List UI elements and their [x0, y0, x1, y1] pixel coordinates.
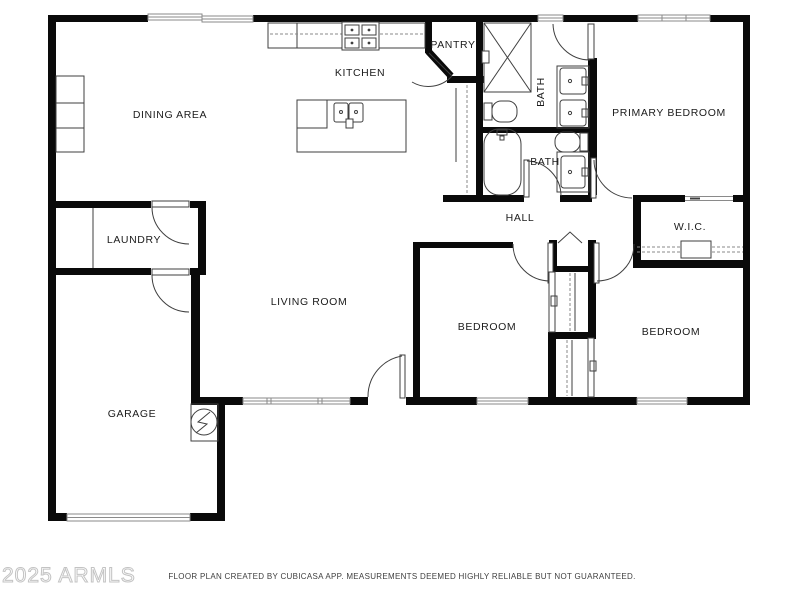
room-label-bath-hall: BATH	[530, 156, 560, 168]
windows	[148, 14, 733, 404]
toilet-icon	[555, 132, 588, 152]
room-label-hall: HALL	[506, 212, 535, 224]
disclaimer-text: FLOOR PLAN CREATED BY CUBICASA APP. MEAS…	[168, 572, 635, 581]
kitchen-sink-icon	[334, 103, 363, 128]
room-label-primary-bedroom: PRIMARY BEDROOM	[612, 107, 726, 119]
room-label-kitchen: KITCHEN	[335, 67, 385, 79]
fridge-cabinet	[456, 85, 467, 195]
water-heater-icon	[191, 404, 218, 441]
room-label-wic: W.I.C.	[674, 221, 706, 233]
window	[638, 15, 710, 21]
door-arc	[594, 243, 634, 283]
door-arc	[553, 24, 594, 60]
toilet-icon	[484, 101, 517, 122]
door-arc	[152, 269, 189, 312]
closet-rod	[549, 272, 575, 332]
armls-watermark: 2025 ARMLS	[2, 564, 136, 587]
room-label-laundry: LAUNDRY	[107, 234, 161, 246]
window	[538, 15, 563, 21]
closet-rod	[637, 241, 743, 258]
attic-chevron-icon	[558, 232, 582, 243]
vanity-sink-icon	[557, 152, 589, 192]
shelves	[56, 76, 84, 152]
room-label-garage: GARAGE	[108, 408, 157, 420]
room-label-pantry: PANTRY	[430, 39, 475, 51]
floor-plan-page: KITCHEN DINING AREA PANTRY BATH PRIMARY …	[0, 0, 800, 600]
window	[148, 14, 202, 20]
room-label-bath-primary: BATH	[535, 77, 547, 107]
shower-icon	[482, 23, 531, 92]
window	[477, 398, 528, 404]
door-arc	[368, 355, 405, 398]
door-arc	[591, 158, 632, 198]
room-label-bedroom-middle: BEDROOM	[458, 321, 516, 333]
room-label-bedroom-right: BEDROOM	[642, 326, 700, 338]
garage-door	[67, 514, 190, 521]
window	[637, 398, 687, 404]
floor-plan-canvas: KITCHEN DINING AREA PANTRY BATH PRIMARY …	[0, 0, 800, 600]
window	[202, 16, 253, 22]
room-label-dining-area: DINING AREA	[133, 109, 207, 121]
window	[243, 398, 350, 404]
cased-opening	[685, 197, 733, 201]
door-arc	[513, 243, 553, 283]
room-label-living-room: LIVING ROOM	[271, 296, 348, 308]
interior-walls	[48, 22, 750, 398]
bathtub-icon	[484, 129, 521, 195]
closet-rod	[567, 338, 596, 397]
vanity-sink-icon	[557, 66, 589, 128]
stove-icon	[342, 22, 379, 50]
